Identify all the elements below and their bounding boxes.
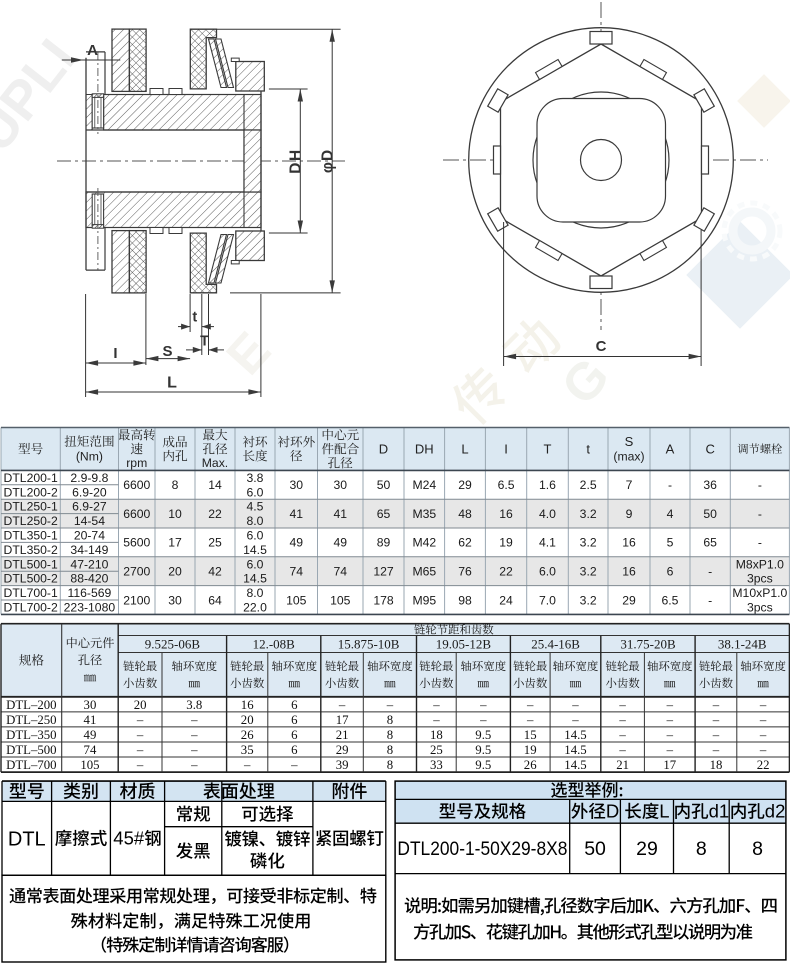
svg-text:88-420: 88-420 xyxy=(70,572,108,586)
svg-text:25.4-16B: 25.4-16B xyxy=(531,636,580,651)
svg-text:30: 30 xyxy=(289,478,303,492)
svg-text:19: 19 xyxy=(524,743,537,757)
svg-text:–: – xyxy=(526,698,534,712)
svg-text:21: 21 xyxy=(616,758,629,772)
svg-text:6: 6 xyxy=(291,743,298,757)
svg-text:30: 30 xyxy=(333,478,347,492)
svg-text:–: – xyxy=(136,728,144,742)
svg-text:14.5: 14.5 xyxy=(564,758,586,772)
svg-text:8: 8 xyxy=(387,713,393,727)
svg-text:22: 22 xyxy=(499,565,513,579)
svg-text:25: 25 xyxy=(208,536,222,550)
svg-text:C: C xyxy=(596,338,607,355)
svg-text:t: t xyxy=(586,442,590,457)
svg-text:105: 105 xyxy=(80,758,99,772)
svg-text:29: 29 xyxy=(636,838,658,860)
svg-text:–: – xyxy=(759,713,767,727)
svg-text:33: 33 xyxy=(430,758,443,772)
svg-text:A: A xyxy=(87,42,98,59)
svg-text:–: – xyxy=(571,698,579,712)
svg-text:DTL350-1: DTL350-1 xyxy=(4,529,58,543)
svg-text:16: 16 xyxy=(499,507,513,521)
svg-text:-: - xyxy=(758,536,762,550)
svg-text:9.525-06B: 9.525-06B xyxy=(145,636,201,651)
svg-text:DTL350-2: DTL350-2 xyxy=(4,543,58,557)
svg-text:21: 21 xyxy=(336,728,349,742)
svg-text:19.05-12B: 19.05-12B xyxy=(436,636,492,651)
svg-text:30: 30 xyxy=(168,593,182,607)
svg-text:–: – xyxy=(290,758,298,772)
svg-text:76: 76 xyxy=(458,565,472,579)
svg-text:127: 127 xyxy=(373,565,394,579)
svg-text:DTL–200: DTL–200 xyxy=(6,698,56,712)
svg-text:–: – xyxy=(712,698,720,712)
svg-text:14.5: 14.5 xyxy=(564,728,586,742)
svg-text:5: 5 xyxy=(667,536,674,550)
svg-text:4.0: 4.0 xyxy=(539,507,556,521)
svg-text:7: 7 xyxy=(626,478,633,492)
svg-text:12.-08B: 12.-08B xyxy=(253,636,296,651)
svg-text:DTL700-2: DTL700-2 xyxy=(4,601,58,615)
svg-text:64: 64 xyxy=(208,593,222,607)
svg-text:(Nm): (Nm) xyxy=(76,450,103,464)
svg-text:t: t xyxy=(192,310,197,326)
svg-text:6.0: 6.0 xyxy=(247,557,264,571)
svg-text:–: – xyxy=(666,713,674,727)
svg-text:M95: M95 xyxy=(412,593,436,607)
svg-text:–: – xyxy=(666,698,674,712)
svg-text:–: – xyxy=(759,728,767,742)
svg-text:22: 22 xyxy=(757,758,770,772)
svg-text:–: – xyxy=(618,728,626,742)
svg-text:14: 14 xyxy=(208,478,222,492)
svg-text:d2: d2 xyxy=(765,801,786,822)
svg-text:-: - xyxy=(708,565,712,579)
svg-text:–: – xyxy=(190,758,198,772)
svg-text:8: 8 xyxy=(387,743,393,757)
svg-text:6.0: 6.0 xyxy=(539,565,556,579)
svg-text:–: – xyxy=(618,713,626,727)
svg-text:DTL200-2: DTL200-2 xyxy=(4,485,58,499)
svg-text:DTL: DTL xyxy=(8,828,46,850)
svg-text:6: 6 xyxy=(291,698,298,712)
svg-text:3.2: 3.2 xyxy=(580,507,597,521)
svg-text:6: 6 xyxy=(291,728,298,742)
svg-text:–: – xyxy=(136,743,144,757)
svg-text:29: 29 xyxy=(336,743,349,757)
svg-text:8.0: 8.0 xyxy=(247,586,264,600)
svg-text:C: C xyxy=(705,442,714,457)
svg-text:30: 30 xyxy=(84,698,97,712)
svg-text:DTL–500: DTL–500 xyxy=(6,743,56,757)
svg-text:62: 62 xyxy=(458,536,472,550)
svg-text:A: A xyxy=(666,442,675,457)
svg-text:8: 8 xyxy=(387,728,393,742)
svg-text:49: 49 xyxy=(84,728,97,742)
svg-text:116-569: 116-569 xyxy=(67,586,111,600)
svg-text:16: 16 xyxy=(241,698,254,712)
svg-text:65: 65 xyxy=(703,536,717,550)
svg-text:6600: 6600 xyxy=(123,507,150,521)
svg-text:6.5: 6.5 xyxy=(498,478,515,492)
svg-text:15: 15 xyxy=(524,728,537,742)
svg-text:3pcs: 3pcs xyxy=(747,572,773,586)
svg-text:50: 50 xyxy=(703,507,717,521)
svg-text:6.0: 6.0 xyxy=(247,485,264,499)
svg-text:I: I xyxy=(113,345,117,362)
svg-text:D: D xyxy=(379,442,388,457)
svg-text:9: 9 xyxy=(626,507,633,521)
svg-text:41: 41 xyxy=(289,507,303,521)
svg-text:178: 178 xyxy=(373,593,394,607)
svg-text:–: – xyxy=(712,713,720,727)
svg-text:φD: φD xyxy=(319,149,336,173)
svg-text:22.0: 22.0 xyxy=(243,601,267,615)
svg-text:–: – xyxy=(190,743,198,757)
svg-text:29: 29 xyxy=(622,593,636,607)
svg-text:98: 98 xyxy=(458,593,472,607)
svg-text:14-54: 14-54 xyxy=(74,514,105,528)
svg-text:Max.: Max. xyxy=(202,456,228,470)
svg-text:35: 35 xyxy=(241,743,254,757)
svg-text:DTL–250: DTL–250 xyxy=(6,713,56,727)
svg-text:20-74: 20-74 xyxy=(74,529,105,543)
svg-text:DTL250-1: DTL250-1 xyxy=(4,500,58,514)
svg-text:DTL200-1: DTL200-1 xyxy=(4,471,58,485)
svg-text:5600: 5600 xyxy=(123,536,150,550)
svg-text:–: – xyxy=(190,713,198,727)
svg-text:DTL250-2: DTL250-2 xyxy=(4,514,58,528)
svg-text:38.1-24B: 38.1-24B xyxy=(718,636,767,651)
svg-text:29: 29 xyxy=(458,478,472,492)
svg-text:L: L xyxy=(461,442,468,457)
svg-text:19: 19 xyxy=(499,536,513,550)
svg-text:–: – xyxy=(666,743,674,757)
svg-text:9.5: 9.5 xyxy=(475,758,491,772)
svg-text:M10xP1.0: M10xP1.0 xyxy=(732,586,787,600)
svg-text:–: – xyxy=(666,728,674,742)
svg-text:41: 41 xyxy=(333,507,347,521)
svg-text:6.5: 6.5 xyxy=(662,593,679,607)
svg-text:rpm: rpm xyxy=(126,456,147,470)
svg-text:M8xP1.0: M8xP1.0 xyxy=(736,557,784,571)
svg-text:M42: M42 xyxy=(412,536,436,550)
svg-text:49: 49 xyxy=(333,536,347,550)
svg-text:S: S xyxy=(625,434,634,449)
svg-text:-: - xyxy=(758,478,762,492)
svg-text:2700: 2700 xyxy=(123,565,150,579)
svg-text:1.6: 1.6 xyxy=(539,478,556,492)
svg-text:14.5: 14.5 xyxy=(243,572,267,586)
svg-text:–: – xyxy=(136,713,144,727)
svg-text:3.2: 3.2 xyxy=(580,565,597,579)
svg-text:–: – xyxy=(386,698,394,712)
svg-text:15.875-10B: 15.875-10B xyxy=(338,636,400,651)
svg-text:9.5: 9.5 xyxy=(475,728,491,742)
svg-text:65: 65 xyxy=(377,507,391,521)
svg-text:–: – xyxy=(571,713,579,727)
svg-text:6600: 6600 xyxy=(123,478,150,492)
svg-text:DTL200-1-50X29-8X8: DTL200-1-50X29-8X8 xyxy=(397,838,567,860)
svg-text:(max): (max) xyxy=(613,450,644,464)
svg-text:50: 50 xyxy=(377,478,391,492)
svg-text:S: S xyxy=(162,343,172,360)
svg-text:–: – xyxy=(712,728,720,742)
svg-text:4.5: 4.5 xyxy=(247,500,264,514)
svg-text:3.2: 3.2 xyxy=(580,593,597,607)
svg-text:89: 89 xyxy=(377,536,391,550)
svg-text:17: 17 xyxy=(663,758,676,772)
svg-text:8.0: 8.0 xyxy=(247,514,264,528)
svg-text:8: 8 xyxy=(387,758,393,772)
svg-text:3pcs: 3pcs xyxy=(747,601,773,615)
svg-text:6: 6 xyxy=(291,713,298,727)
svg-text:M65: M65 xyxy=(412,565,436,579)
svg-text:–: – xyxy=(526,713,534,727)
svg-text:31.75-20B: 31.75-20B xyxy=(620,636,676,651)
svg-text:20: 20 xyxy=(241,713,254,727)
svg-text:DH: DH xyxy=(415,442,434,457)
svg-text:–: – xyxy=(432,698,440,712)
svg-text:2.9-9.8: 2.9-9.8 xyxy=(70,471,108,485)
svg-text:–: – xyxy=(759,743,767,757)
svg-text:4.1: 4.1 xyxy=(539,536,556,550)
svg-text:26: 26 xyxy=(241,728,254,742)
svg-text:6.9-27: 6.9-27 xyxy=(72,500,107,514)
svg-text:14.5: 14.5 xyxy=(564,743,586,757)
svg-text:105: 105 xyxy=(286,593,307,607)
svg-text:74: 74 xyxy=(289,565,303,579)
svg-text:223-1080: 223-1080 xyxy=(64,601,116,615)
svg-text:6.0: 6.0 xyxy=(247,529,264,543)
svg-text:3.8: 3.8 xyxy=(247,471,264,485)
svg-text:-: - xyxy=(758,507,762,521)
svg-text:14.5: 14.5 xyxy=(243,543,267,557)
svg-text:24: 24 xyxy=(499,593,513,607)
svg-text:45#: 45# xyxy=(113,828,145,849)
svg-text:DTL500-1: DTL500-1 xyxy=(4,557,58,571)
svg-text:20: 20 xyxy=(134,698,147,712)
svg-text:2100: 2100 xyxy=(123,593,150,607)
svg-text:74: 74 xyxy=(333,565,347,579)
svg-text:39: 39 xyxy=(336,758,349,772)
svg-text:L: L xyxy=(659,801,669,822)
svg-text:16: 16 xyxy=(622,565,636,579)
svg-text:d1: d1 xyxy=(709,801,730,822)
svg-text:20: 20 xyxy=(168,565,182,579)
svg-text:–: – xyxy=(618,698,626,712)
svg-text:42: 42 xyxy=(208,565,222,579)
svg-text:17: 17 xyxy=(336,713,349,727)
svg-text:I: I xyxy=(504,442,508,457)
svg-text:9.5: 9.5 xyxy=(475,743,491,757)
svg-text:–: – xyxy=(190,728,198,742)
svg-text:–: – xyxy=(712,743,720,757)
svg-text:6.9-20: 6.9-20 xyxy=(72,485,107,499)
svg-text:105: 105 xyxy=(330,593,351,607)
svg-text:47-210: 47-210 xyxy=(70,557,108,571)
svg-text:DTL500-2: DTL500-2 xyxy=(4,572,58,586)
svg-text:L: L xyxy=(167,375,177,392)
svg-text:25: 25 xyxy=(430,743,443,757)
svg-text:6: 6 xyxy=(667,565,674,579)
svg-text:7.0: 7.0 xyxy=(539,593,556,607)
svg-text:T: T xyxy=(200,334,209,350)
svg-text:-: - xyxy=(668,478,672,492)
svg-text:18: 18 xyxy=(710,758,723,772)
svg-text:T: T xyxy=(544,442,552,457)
svg-text:34-149: 34-149 xyxy=(70,543,108,557)
svg-text:DTL700-1: DTL700-1 xyxy=(4,586,58,600)
svg-text:-: - xyxy=(708,593,712,607)
svg-text:8: 8 xyxy=(696,838,707,860)
svg-text:DTL–700: DTL–700 xyxy=(6,758,56,772)
svg-text:DH: DH xyxy=(287,148,304,173)
svg-text:49: 49 xyxy=(289,536,303,550)
svg-text:8: 8 xyxy=(752,838,763,860)
svg-text:22: 22 xyxy=(208,507,222,521)
svg-text:–: – xyxy=(136,758,144,772)
svg-text:41: 41 xyxy=(84,713,97,727)
svg-text:10: 10 xyxy=(168,507,182,521)
svg-text:18: 18 xyxy=(430,728,443,742)
svg-text:–: – xyxy=(338,698,346,712)
svg-text:48: 48 xyxy=(458,507,472,521)
svg-text:M35: M35 xyxy=(412,507,436,521)
svg-text:8: 8 xyxy=(172,478,179,492)
svg-text:50: 50 xyxy=(584,838,606,860)
svg-text:36: 36 xyxy=(703,478,717,492)
svg-text:3.8: 3.8 xyxy=(186,698,202,712)
svg-text:17: 17 xyxy=(168,536,182,550)
svg-text:D: D xyxy=(606,801,619,822)
svg-text:M24: M24 xyxy=(412,478,436,492)
svg-text:–: – xyxy=(479,698,487,712)
svg-text:–: – xyxy=(618,743,626,757)
svg-text:–: – xyxy=(432,713,440,727)
svg-text:–: – xyxy=(759,698,767,712)
svg-text:26: 26 xyxy=(524,758,537,772)
svg-text:2.5: 2.5 xyxy=(580,478,597,492)
svg-text:DTL–350: DTL–350 xyxy=(6,728,56,742)
svg-text:–: – xyxy=(243,758,251,772)
svg-text:74: 74 xyxy=(84,743,97,757)
svg-text:16: 16 xyxy=(622,536,636,550)
svg-text:4: 4 xyxy=(667,507,674,521)
svg-text:3.2: 3.2 xyxy=(580,536,597,550)
svg-text:–: – xyxy=(479,713,487,727)
